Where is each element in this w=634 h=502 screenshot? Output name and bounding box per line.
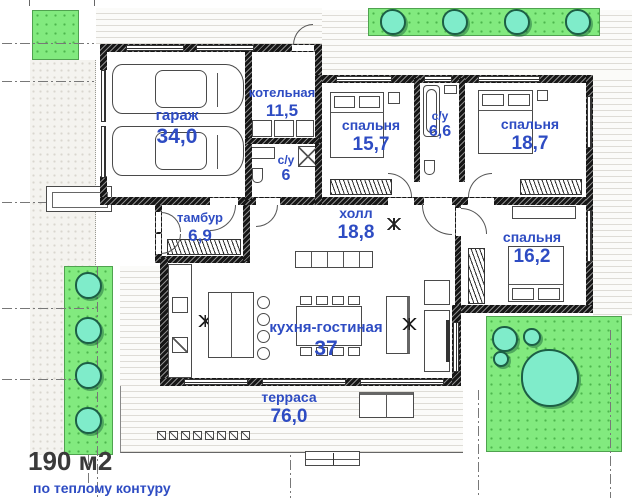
axis-line (2, 43, 94, 44)
door-opening (210, 198, 238, 205)
wardrobe-icon (468, 248, 485, 304)
planter-icon (241, 431, 250, 440)
tree-icon (75, 317, 102, 344)
bar-stool-icon (257, 330, 270, 343)
tree-icon (75, 407, 102, 434)
axis-line (2, 308, 94, 309)
window (453, 322, 459, 372)
room-label-garage: гараж 34,0 (156, 108, 199, 148)
chair-icon (348, 296, 360, 305)
planter-icon (193, 431, 202, 440)
plant-icon (402, 318, 417, 330)
tree-icon (75, 272, 102, 299)
wall (160, 258, 168, 386)
planter-icon (217, 431, 226, 440)
terrace-sofa-icon (359, 392, 414, 418)
tree-icon (504, 9, 530, 35)
bar-stool-icon (257, 347, 270, 360)
kitchen-island (208, 292, 254, 358)
floor-plan: гараж 34,0 котельная 11,5 с/у 6 спальня … (0, 0, 634, 502)
bar-stool-icon (257, 296, 270, 309)
window (478, 76, 540, 82)
window (587, 96, 592, 148)
tree-icon (565, 9, 591, 35)
kitchen-counter (168, 264, 192, 378)
door-opening (468, 198, 494, 205)
tree-icon (380, 9, 406, 35)
sink-icon (249, 147, 275, 159)
garage-door (101, 126, 106, 178)
axis-line (478, 390, 479, 498)
wall (414, 78, 420, 182)
toilet-icon (252, 168, 263, 183)
window (262, 379, 346, 385)
deck-side (120, 266, 160, 386)
chair-icon (332, 296, 344, 305)
room-label-vestibule: тамбур 6,9 (177, 211, 223, 245)
armchair-icon (424, 280, 450, 305)
chair-icon (300, 296, 312, 305)
wall (245, 50, 252, 200)
toilet-icon (424, 160, 435, 175)
planter-icon (229, 431, 238, 440)
tick-mark (29, 0, 30, 6)
paving-top-left (96, 8, 322, 44)
total-area-label: 190 м2 (28, 446, 112, 477)
total-area-note: по теплому контуру (33, 480, 171, 496)
wall (155, 256, 250, 263)
nightstand-icon (537, 90, 548, 101)
tree-icon (75, 362, 102, 389)
wall (459, 78, 465, 182)
window (424, 76, 452, 82)
plant-icon (386, 218, 402, 230)
bush-icon (492, 326, 518, 352)
window (184, 379, 248, 385)
room-label-hall: холл 18,8 (338, 206, 375, 243)
wall (245, 138, 320, 144)
room-label-kitchen-living: кухня-гостиная 37 (269, 320, 382, 360)
hall-cabinet-icon (295, 251, 373, 268)
wardrobe-icon (520, 179, 582, 195)
lawn-top-left (32, 10, 79, 60)
room-label-bathroom-2: с/у 6,6 (429, 110, 451, 141)
sink-icon (444, 85, 457, 94)
room-label-bathroom-1: с/у 6 (278, 154, 295, 185)
planter-icon (205, 431, 214, 440)
window (360, 379, 444, 385)
terrace-steps (305, 451, 360, 466)
door-opening (256, 198, 280, 205)
boiler-icon (252, 120, 272, 137)
nightstand-icon (388, 92, 400, 104)
door-opening (424, 198, 452, 205)
planter-icon (181, 431, 190, 440)
wall (455, 305, 593, 313)
room-label-bedroom-3: спальня 16,2 (503, 230, 561, 267)
bush-icon (523, 328, 541, 346)
washer-icon (274, 120, 294, 137)
bar-stool-icon (257, 313, 270, 326)
garage-door (101, 70, 106, 122)
planter-icon (157, 431, 166, 440)
door-opening (292, 45, 314, 51)
door-opening (388, 198, 414, 205)
room-label-bedroom-1: спальня 15,7 (342, 118, 400, 155)
window (336, 76, 392, 82)
room-label-bedroom-2: спальня 18,7 (501, 117, 559, 154)
tick-mark (94, 0, 95, 6)
chair-icon (316, 296, 328, 305)
tv-icon (446, 320, 450, 362)
large-tree-icon (521, 349, 579, 407)
wall (100, 44, 107, 70)
planter-icon (169, 431, 178, 440)
room-label-boiler: котельная 11,5 (249, 86, 315, 120)
wardrobe-icon (330, 179, 392, 195)
room-label-terrace: терраса 76,0 (261, 390, 316, 427)
window (196, 45, 254, 51)
window (587, 210, 592, 262)
tree-icon (442, 9, 468, 35)
sink-icon (296, 120, 314, 137)
axis-line (610, 330, 611, 498)
wall (315, 44, 322, 75)
window (126, 45, 184, 51)
dresser-icon (512, 206, 576, 219)
wall (243, 205, 250, 261)
bush-icon (493, 351, 509, 367)
paving-right (593, 75, 632, 316)
axis-line (2, 81, 94, 82)
